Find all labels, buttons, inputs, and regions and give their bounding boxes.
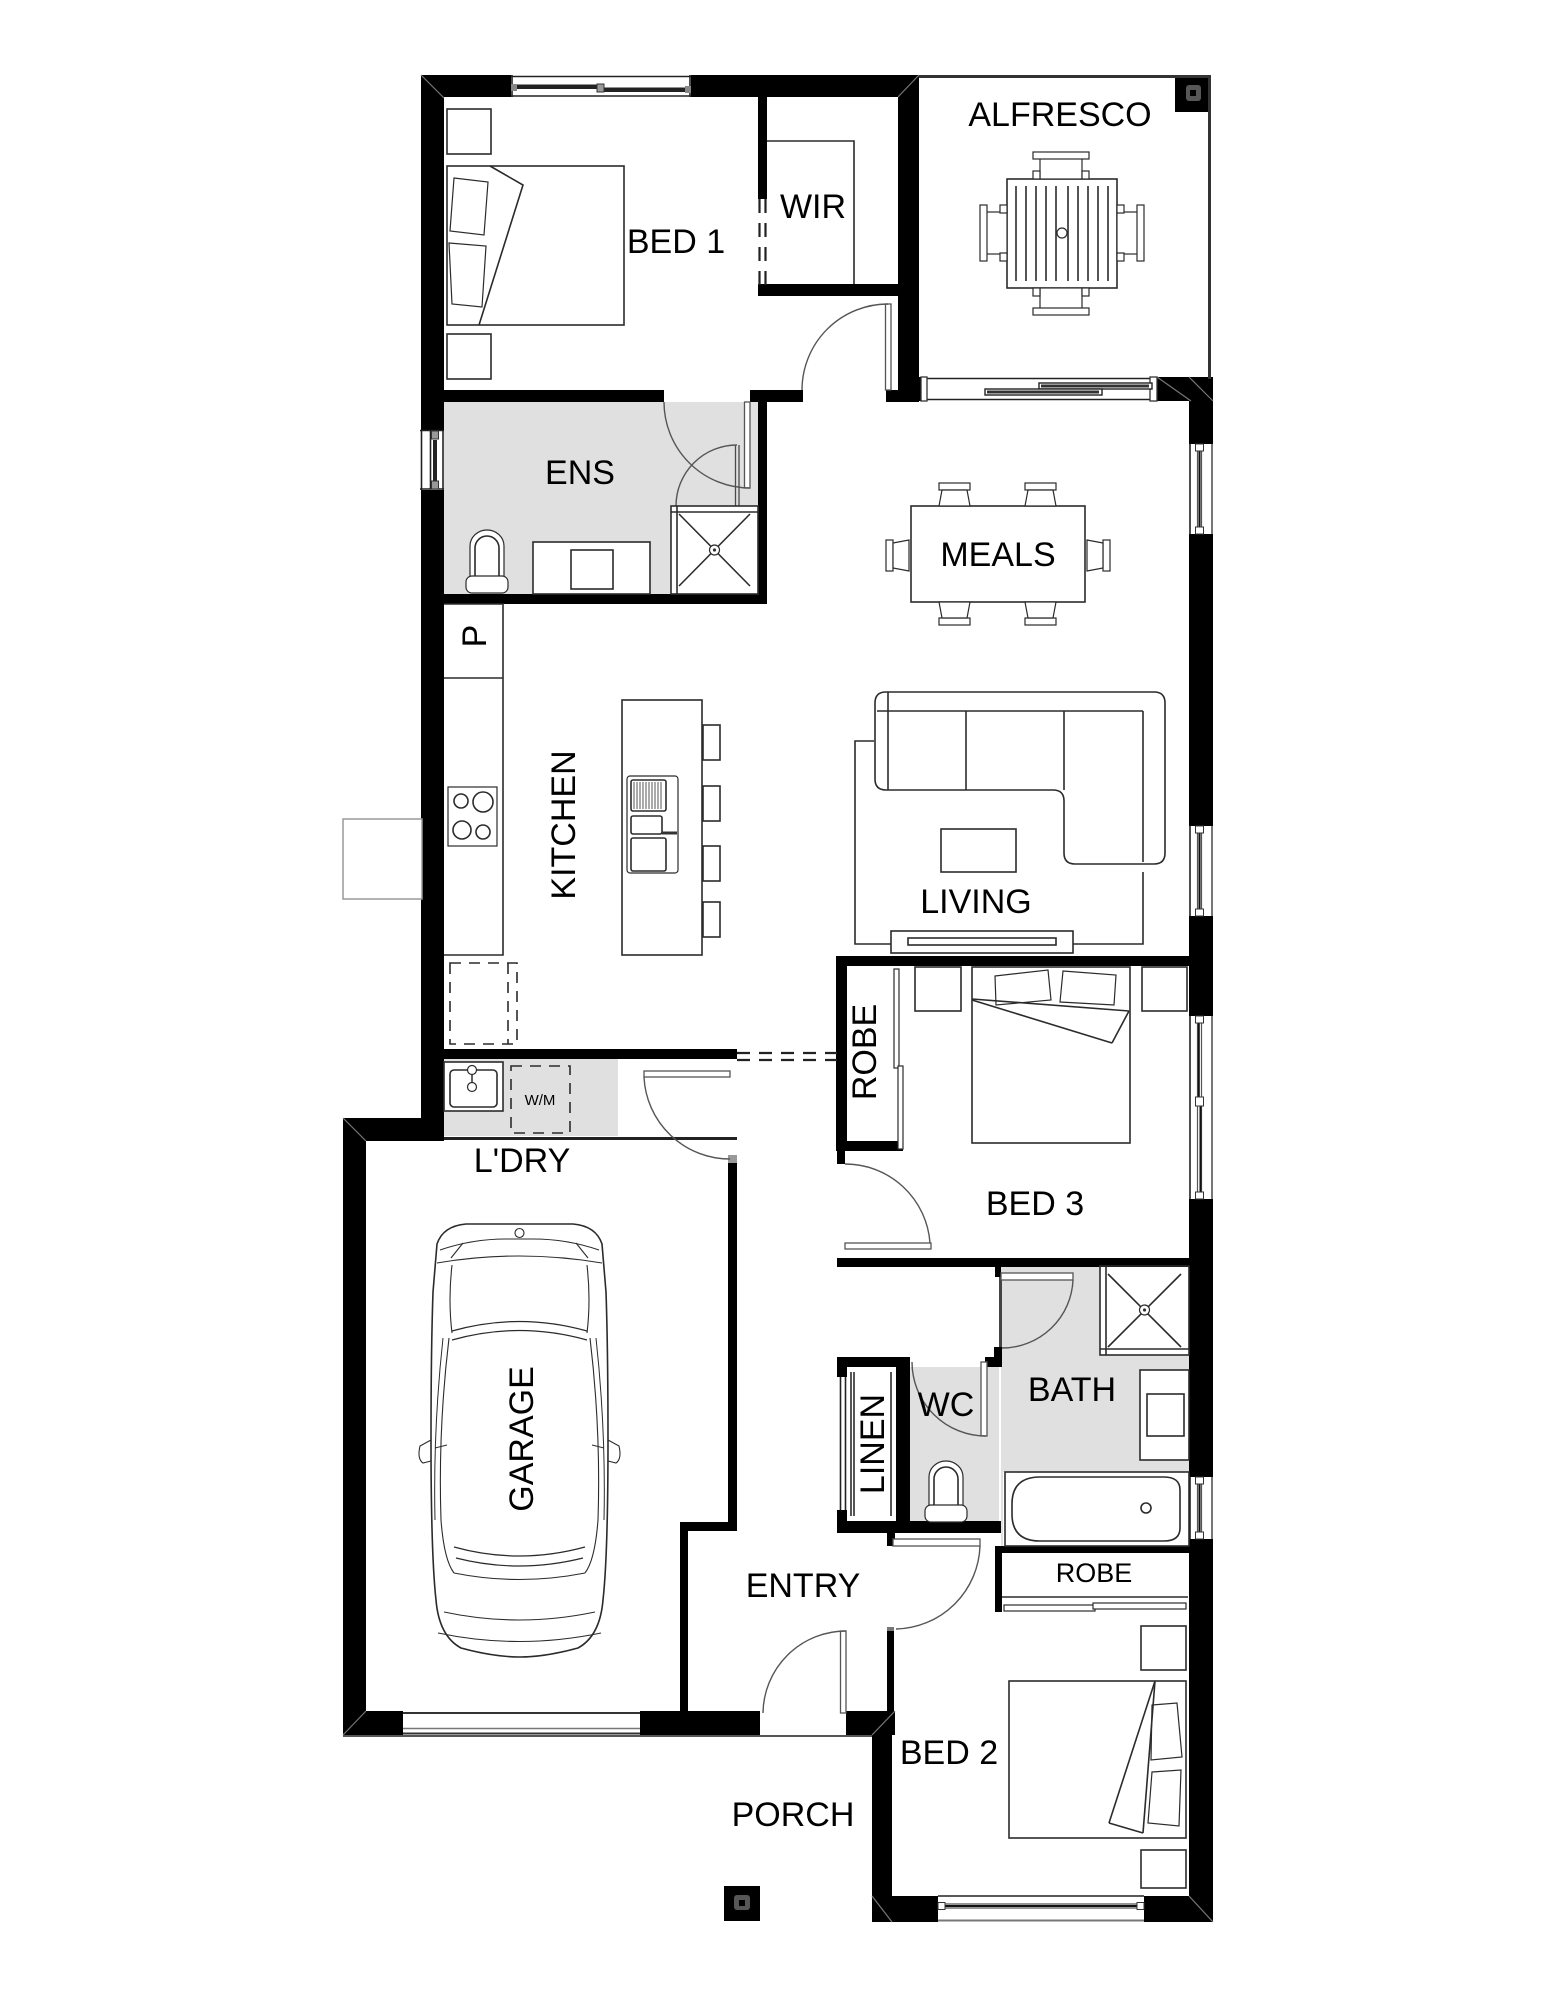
svg-text:P: P: [456, 625, 494, 648]
svg-text:BATH: BATH: [1028, 1371, 1116, 1409]
svg-text:BED 2: BED 2: [900, 1734, 998, 1772]
svg-text:LINEN: LINEN: [854, 1394, 892, 1494]
svg-text:PORCH: PORCH: [732, 1796, 855, 1834]
svg-text:ENTRY: ENTRY: [746, 1567, 861, 1605]
svg-text:ROBE: ROBE: [1056, 1558, 1133, 1588]
svg-text:L'DRY: L'DRY: [474, 1142, 571, 1180]
svg-text:ALFRESCO: ALFRESCO: [968, 96, 1151, 134]
svg-text:W/M: W/M: [525, 1092, 556, 1109]
svg-text:BED 1: BED 1: [627, 223, 725, 261]
svg-text:GARAGE: GARAGE: [503, 1366, 541, 1511]
svg-text:KITCHEN: KITCHEN: [545, 750, 583, 899]
svg-text:WC: WC: [918, 1386, 975, 1424]
svg-text:LIVING: LIVING: [920, 883, 1031, 921]
svg-text:BED 3: BED 3: [986, 1185, 1084, 1223]
svg-text:MEALS: MEALS: [940, 536, 1055, 574]
svg-text:ENS: ENS: [545, 454, 615, 492]
svg-text:WIR: WIR: [780, 188, 846, 226]
svg-text:ROBE: ROBE: [846, 1004, 884, 1100]
